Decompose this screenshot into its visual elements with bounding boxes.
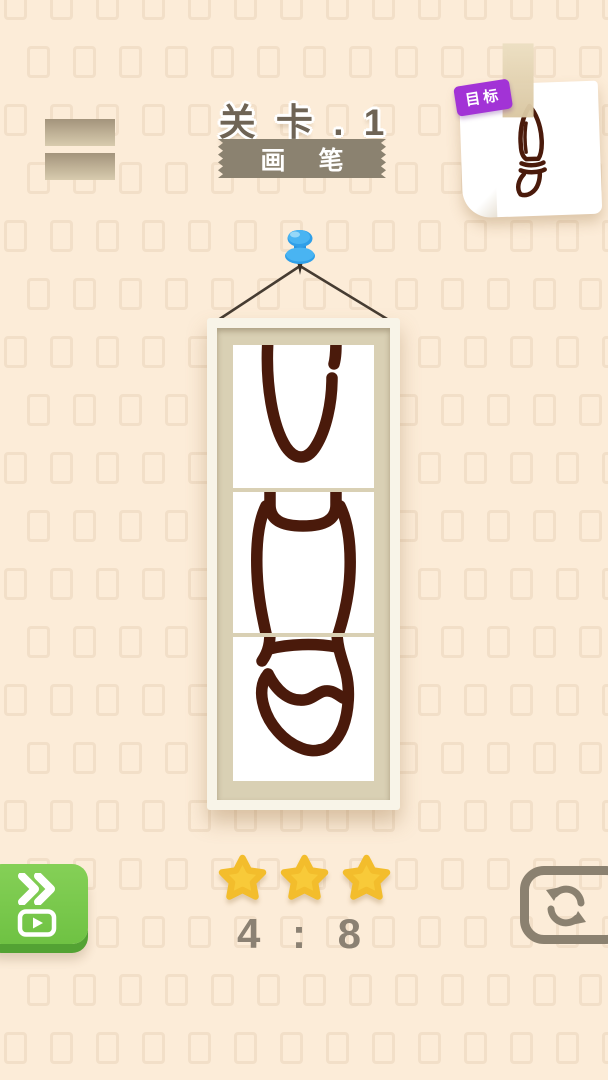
piece-2-drawing	[233, 492, 374, 633]
piece-1-drawing	[233, 345, 374, 488]
stars-rating	[0, 853, 608, 903]
watch-video-icon	[17, 909, 57, 937]
game-screen: 关 卡 . 1 画 笔 目标	[0, 0, 608, 1080]
level-name-ribbon: 画 笔	[218, 139, 386, 178]
pushpin-icon	[282, 229, 318, 277]
star-icon	[279, 853, 330, 903]
puzzle-piece-1[interactable]	[233, 345, 374, 488]
puzzle-piece-2[interactable]	[233, 492, 374, 633]
puzzle-frame	[207, 318, 400, 810]
puzzle-piece-3[interactable]	[233, 637, 374, 781]
fast-forward-icon	[17, 873, 57, 905]
menu-button[interactable]	[45, 119, 115, 181]
menu-bar-icon	[45, 119, 115, 146]
refresh-icon	[540, 881, 592, 931]
menu-bar-icon	[45, 153, 115, 180]
restart-button[interactable]	[520, 866, 608, 944]
star-icon	[341, 853, 392, 903]
level-name-label: 画 笔	[248, 141, 357, 177]
move-counter: 4 : 8	[0, 910, 608, 958]
piece-3-drawing	[233, 637, 374, 781]
skip-level-button[interactable]	[0, 864, 88, 944]
puzzle-panels	[233, 345, 374, 781]
star-icon	[217, 853, 268, 903]
